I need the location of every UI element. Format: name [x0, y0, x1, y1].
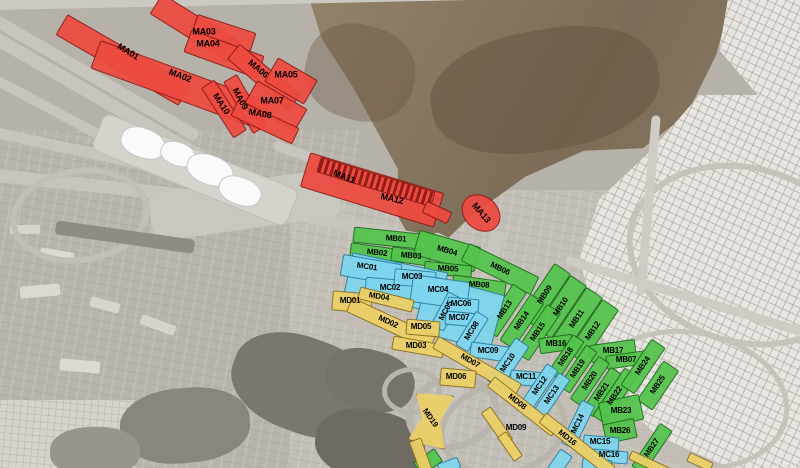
mina-zones-map: MA03MA04MA01MA02MA06MA05MA09MA10MA07MA08…: [0, 0, 800, 468]
zone-MD05[interactable]: [405, 319, 440, 338]
zone-fragment[interactable]: [547, 448, 573, 468]
zones-layer: [0, 0, 800, 468]
zone-MD06[interactable]: [439, 367, 476, 388]
zone-MA13[interactable]: [454, 186, 508, 239]
zone-fragment[interactable]: [686, 452, 714, 468]
